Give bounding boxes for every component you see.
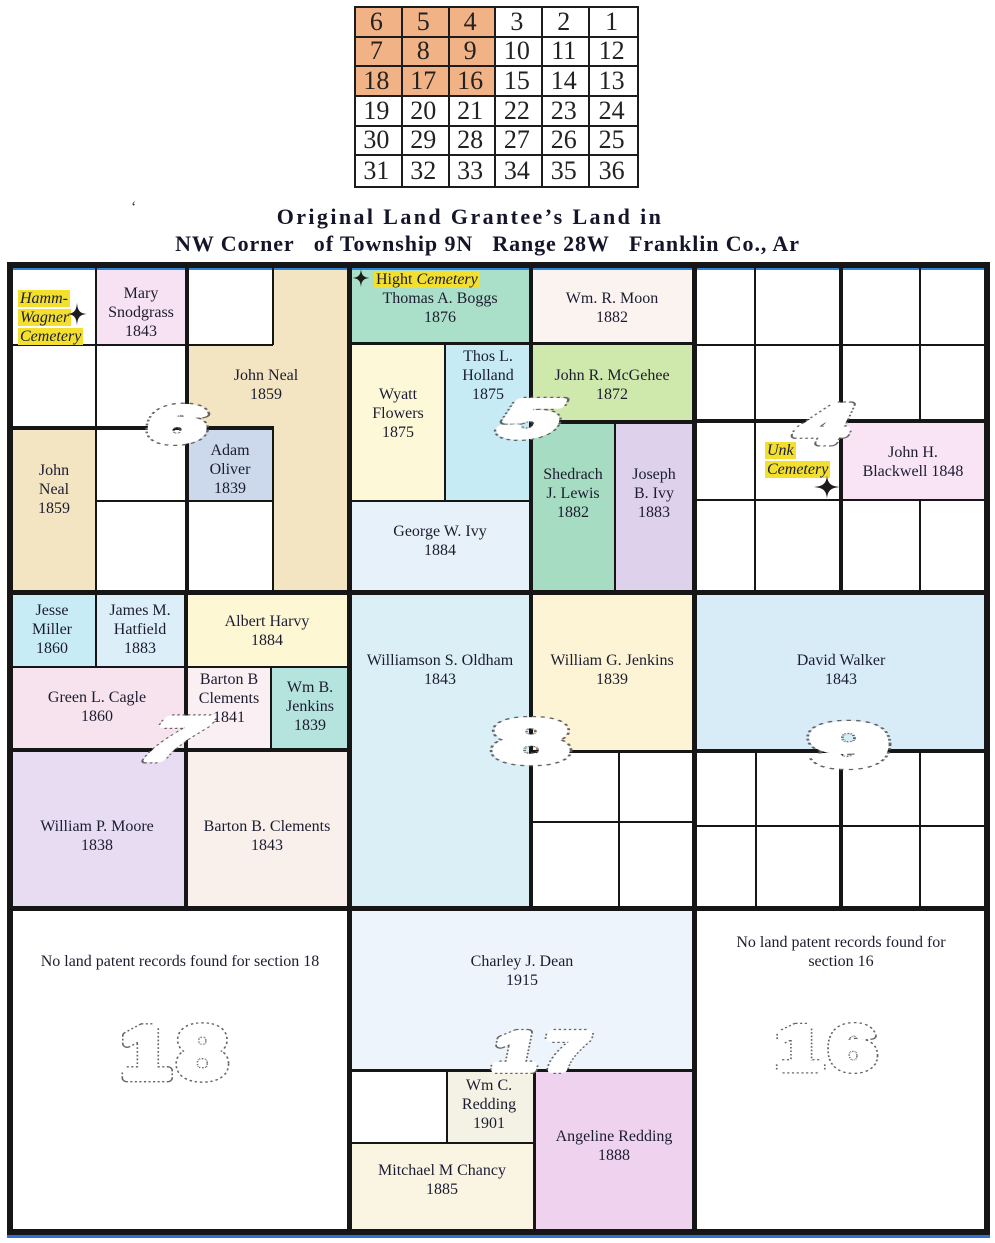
svg-text:6: 6 xyxy=(144,396,211,452)
svg-text:9: 9 xyxy=(811,711,888,778)
svg-text:5: 5 xyxy=(488,390,575,448)
svg-text:4: 4 xyxy=(787,394,863,454)
svg-text:7: 7 xyxy=(126,706,225,773)
svg-text:1 6: 1 6 xyxy=(776,1013,876,1083)
svg-text:8: 8 xyxy=(494,707,567,774)
svg-text:1 8: 1 8 xyxy=(121,1012,227,1094)
svg-text:1 7: 1 7 xyxy=(488,1022,594,1082)
